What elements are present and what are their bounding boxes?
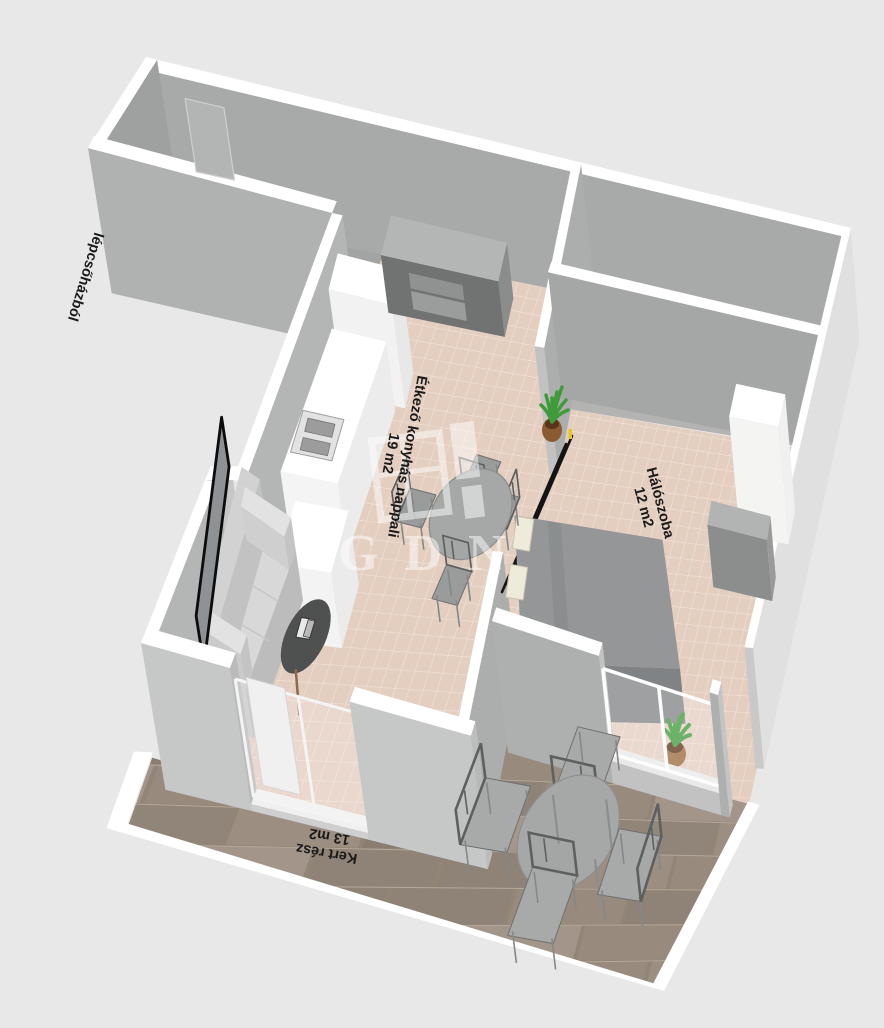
svg-text:GDN: GDN — [338, 525, 532, 582]
